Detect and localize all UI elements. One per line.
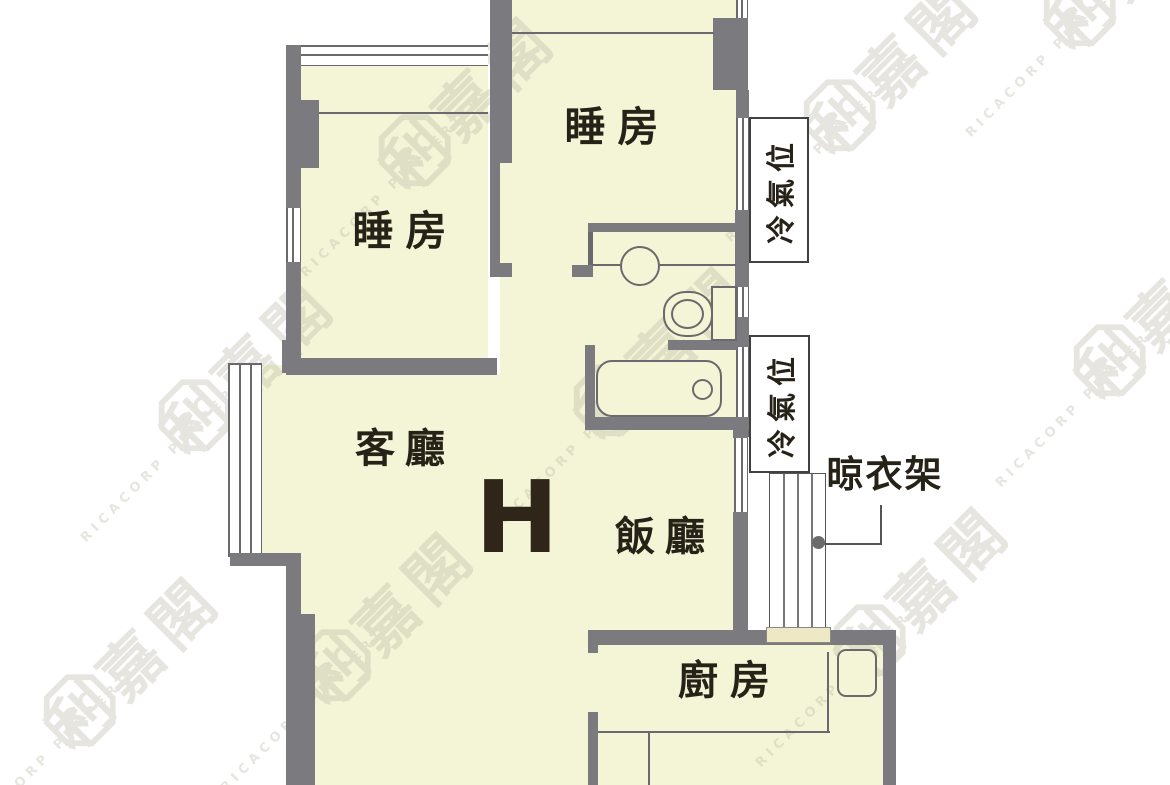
toilet-seat [671, 299, 704, 329]
wall [735, 210, 749, 287]
wall [713, 18, 748, 90]
wall [588, 232, 593, 265]
toilet-tank [711, 286, 737, 341]
wall [282, 340, 301, 373]
wall [500, 263, 512, 277]
wall [490, 163, 500, 277]
interior-line [512, 32, 714, 34]
wall [585, 345, 595, 428]
ricacorp-logo-icon: RC [1060, 311, 1159, 410]
svg-text:RC: RC [54, 684, 107, 737]
ricacorp-logo-icon: RC [1030, 0, 1129, 60]
washbasin [620, 246, 660, 286]
bathtub-drain [692, 379, 713, 400]
bay-window-ledge [258, 365, 302, 555]
leader-line [880, 505, 882, 545]
svg-text:RC: RC [169, 389, 222, 442]
ac-platform-label: 冷氣位 [758, 136, 800, 244]
bedroom-top-label: 睡房 [540, 106, 695, 149]
drying-rack-base [766, 627, 831, 643]
kitchen-counter-line [648, 731, 650, 785]
kitchen-counter-line [598, 731, 830, 733]
wall [286, 566, 301, 614]
svg-text:RC: RC [1084, 334, 1137, 387]
wall [736, 90, 749, 118]
ac-platform: 冷氣位 [749, 335, 810, 473]
living-room-label: 客廳 [330, 428, 480, 470]
window [736, 0, 748, 18]
kitchen-sink [837, 649, 877, 697]
window [736, 287, 749, 317]
ac-platform-label: 冷氣位 [759, 350, 801, 458]
wall [588, 645, 598, 653]
kitchen-counter-line [827, 652, 829, 732]
wall [588, 712, 598, 785]
svg-text:RC: RC [1054, 0, 1107, 37]
floor-plan: RC 利嘉閣 RICACORP PROPERTIES RC 利嘉閣 RICACO… [0, 0, 1170, 785]
leader-line [821, 543, 882, 545]
ac-platform: 冷氣位 [749, 117, 809, 263]
wall [735, 317, 749, 347]
bay-window [228, 363, 262, 557]
wall [668, 340, 737, 350]
wall [290, 358, 497, 375]
svg-text:RC: RC [814, 89, 867, 142]
wall [585, 417, 750, 430]
bedroom-left-label: 睡房 [328, 210, 483, 253]
wall [588, 223, 737, 232]
window [288, 45, 488, 66]
wall [301, 100, 319, 168]
interior-line [319, 112, 488, 114]
wall [286, 614, 315, 785]
kitchen-label: 廚房 [655, 660, 805, 702]
window [286, 208, 301, 262]
window [736, 118, 749, 210]
wall [490, 0, 512, 163]
window [734, 438, 748, 512]
ricacorp-logo-icon: RC [30, 661, 129, 760]
unit-letter: H [475, 465, 557, 570]
drying-rack [769, 473, 826, 628]
dining-room-label: 飯廳 [590, 516, 740, 558]
leader-dot [812, 536, 825, 549]
wall [572, 265, 593, 277]
wall [230, 553, 301, 566]
wall [588, 630, 896, 645]
wall [883, 630, 896, 785]
wall [286, 45, 301, 208]
drying-rack-label: 晾衣架 [822, 456, 948, 495]
interior-line [592, 264, 736, 266]
